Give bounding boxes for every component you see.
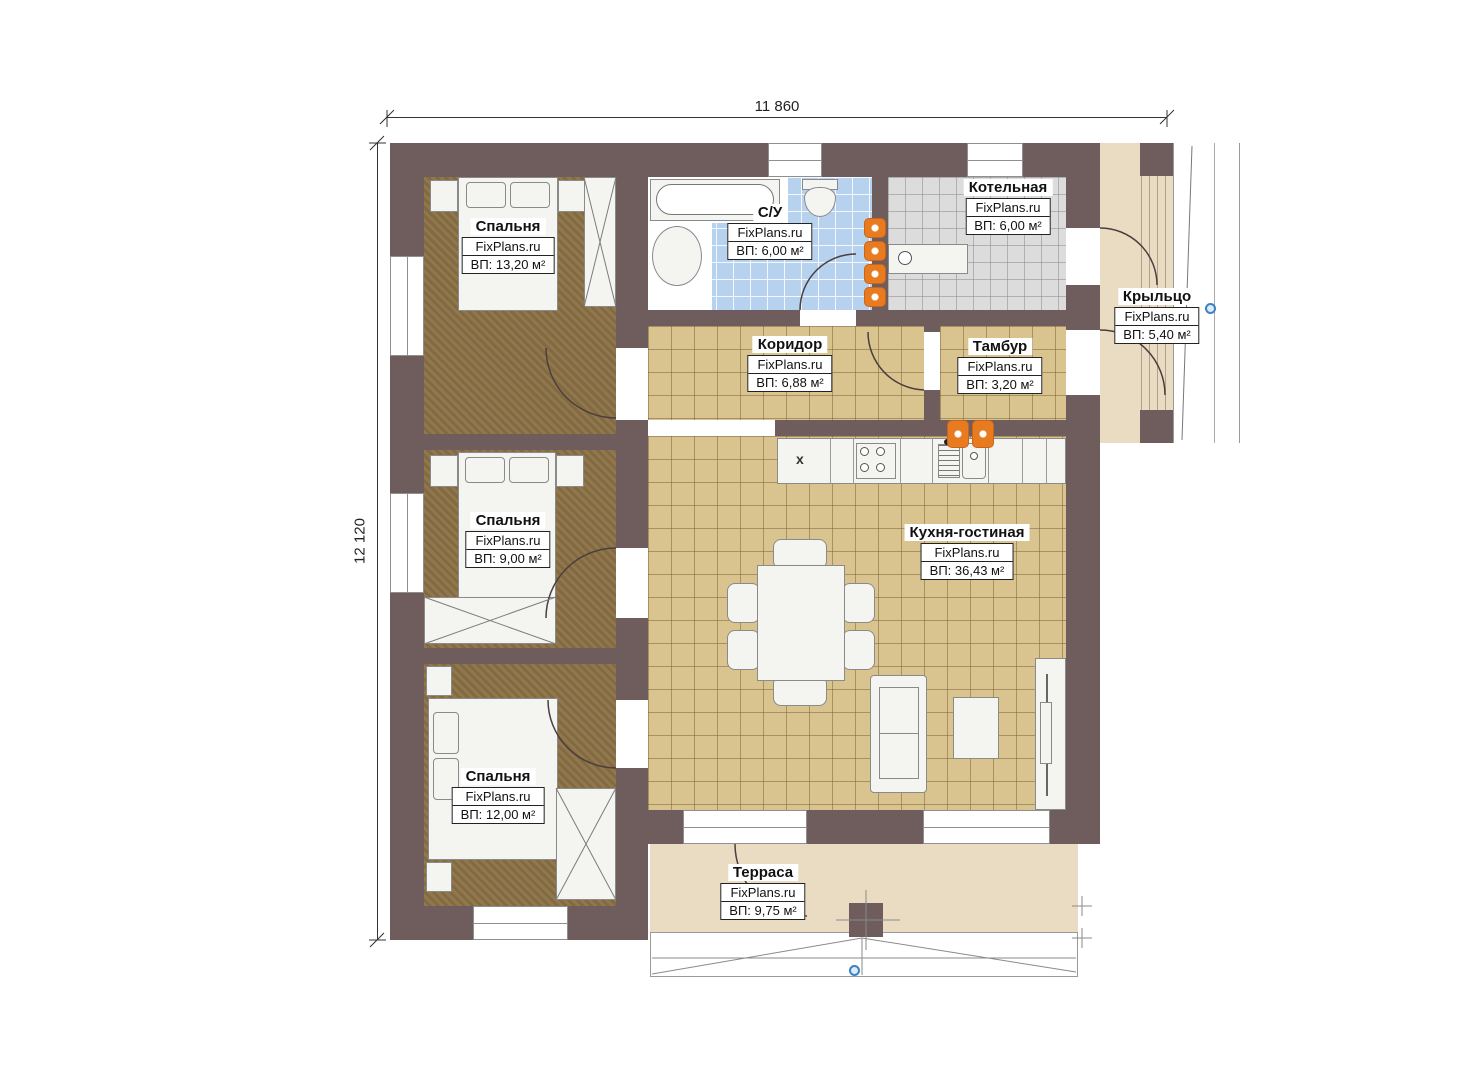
- room-area-kitchen-living: ВП: 36,43 м²: [922, 561, 1013, 579]
- room-brand-porch: FixPlans.ru: [1115, 308, 1198, 325]
- room-area-boiler: ВП: 6,00 м²: [966, 216, 1049, 234]
- dining-chair-right-2: [842, 630, 875, 670]
- room-label-porch: Крыльцо FixPlans.ru ВП: 5,40 м²: [1114, 288, 1199, 344]
- window-left-bedroom2: [390, 493, 424, 593]
- room-area-bathroom: ВП: 6,00 м²: [728, 241, 811, 259]
- coffee-table: [953, 697, 999, 759]
- counter-divider-3: [900, 438, 901, 484]
- counter-divider-1: [830, 438, 831, 484]
- stove-burner-1: [860, 447, 869, 456]
- door-gap-bedroom1: [616, 348, 648, 420]
- kitchen-living-floor: [648, 436, 1066, 810]
- room-box-bedroom3: FixPlans.ru ВП: 12,00 м²: [452, 787, 545, 824]
- dimension-width-label: 11 860: [755, 98, 800, 115]
- bathroom-sink: [652, 226, 702, 286]
- selection-handle-terrace[interactable]: [849, 965, 860, 976]
- dining-chair-left-2: [727, 630, 760, 670]
- room-box-tambour: FixPlans.ru ВП: 3,20 м²: [957, 357, 1042, 394]
- room-name-bedroom2: Спальня: [471, 512, 546, 529]
- radiator-1: [864, 218, 886, 238]
- room-label-bedroom3: Спальня FixPlans.ru ВП: 12,00 м²: [452, 768, 545, 824]
- room-brand-corridor: FixPlans.ru: [748, 356, 831, 373]
- room-label-bathroom: С/У FixPlans.ru ВП: 6,00 м²: [727, 204, 812, 260]
- bedroom3-nightstand-bottom: [426, 862, 452, 892]
- opening-corridor-kitchen: [648, 420, 775, 436]
- room-area-terrace: ВП: 9,75 м²: [721, 901, 804, 919]
- room-label-kitchen-living: Кухня-гостиная FixPlans.ru ВП: 36,43 м²: [905, 524, 1030, 580]
- window-top-bathroom: [768, 143, 822, 177]
- room-brand-bedroom1: FixPlans.ru: [463, 238, 554, 255]
- wall-bathroom-bottom: [648, 310, 1066, 326]
- appliance-x-mark: x: [796, 451, 804, 467]
- bedroom2-pillow-2: [509, 457, 549, 483]
- room-brand-tambour: FixPlans.ru: [958, 358, 1041, 375]
- terrace-steps: [650, 932, 1078, 977]
- room-box-terrace: FixPlans.ru ВП: 9,75 м²: [720, 883, 805, 920]
- room-brand-kitchen-living: FixPlans.ru: [922, 544, 1013, 561]
- stove-burner-3: [860, 463, 869, 472]
- room-box-bedroom2: FixPlans.ru ВП: 9,00 м²: [465, 531, 550, 568]
- selection-handle-porch[interactable]: [1205, 303, 1216, 314]
- door-gap-corridor-tambour: [924, 332, 940, 390]
- window-bottom-bedroom3: [473, 906, 568, 940]
- room-label-terrace: Терраса FixPlans.ru ВП: 9,75 м²: [720, 864, 805, 920]
- stove-burner-4: [876, 463, 885, 472]
- room-area-porch: ВП: 5,40 м²: [1115, 325, 1198, 343]
- room-box-bathroom: FixPlans.ru ВП: 6,00 м²: [727, 223, 812, 260]
- window-bottom-living: [923, 810, 1050, 844]
- room-box-boiler: FixPlans.ru ВП: 6,00 м²: [965, 198, 1050, 235]
- room-name-boiler: Котельная: [964, 179, 1053, 196]
- room-brand-bedroom2: FixPlans.ru: [466, 532, 549, 549]
- bedroom3-wardrobe: [556, 788, 616, 900]
- room-area-bedroom3: ВП: 12,00 м²: [453, 805, 544, 823]
- sofa-cushion-divider: [879, 733, 919, 734]
- sink-drainer: [938, 444, 960, 478]
- room-area-bedroom2: ВП: 9,00 м²: [466, 549, 549, 567]
- bedroom1-wardrobe: [584, 177, 616, 307]
- room-box-kitchen-living: FixPlans.ru ВП: 36,43 м²: [921, 543, 1014, 580]
- door-gap-bedroom2: [616, 548, 648, 618]
- bedroom2-nightstand-left: [430, 455, 458, 487]
- counter-divider-7: [1046, 438, 1047, 484]
- bedroom2-pillow-1: [465, 457, 505, 483]
- room-brand-terrace: FixPlans.ru: [721, 884, 804, 901]
- room-area-tambour: ВП: 3,20 м²: [958, 375, 1041, 393]
- bedroom2-wardrobe: [424, 597, 556, 644]
- dimension-height-label: 12 120: [352, 518, 369, 564]
- tv-box: [1040, 702, 1052, 764]
- door-gap-boiler-porch: [1066, 228, 1100, 285]
- bedroom2-nightstand-right: [556, 455, 584, 487]
- room-label-boiler: Котельная FixPlans.ru ВП: 6,00 м²: [964, 179, 1053, 235]
- sofa: [870, 675, 927, 793]
- room-box-porch: FixPlans.ru ВП: 5,40 м²: [1114, 307, 1199, 344]
- room-brand-bedroom3: FixPlans.ru: [453, 788, 544, 805]
- door-gap-bedroom3: [616, 700, 648, 768]
- room-box-corridor: FixPlans.ru ВП: 6,88 м²: [747, 355, 832, 392]
- boiler-counter-sink: [898, 251, 912, 265]
- room-brand-boiler: FixPlans.ru: [966, 199, 1049, 216]
- door-gap-bathroom: [800, 310, 856, 326]
- room-area-corridor: ВП: 6,88 м²: [748, 373, 831, 391]
- porch-steps-edge-line: [1214, 143, 1215, 443]
- bedroom1-nightstand-right: [558, 180, 586, 212]
- wall-bedroom1-bedroom2: [424, 434, 616, 450]
- room-brand-bathroom: FixPlans.ru: [728, 224, 811, 241]
- dining-chair-left-1: [727, 583, 760, 623]
- room-name-bedroom1: Спальня: [471, 218, 546, 235]
- room-area-bedroom1: ВП: 13,20 м²: [463, 255, 554, 273]
- bedroom3-nightstand-top: [426, 666, 452, 696]
- window-left-bedroom1: [390, 256, 424, 356]
- dimension-line-left: [377, 143, 378, 940]
- bedroom1-pillow-1: [466, 182, 506, 208]
- radiator-4: [864, 287, 886, 307]
- radiator-3: [864, 264, 886, 284]
- room-label-bedroom2: Спальня FixPlans.ru ВП: 9,00 м²: [465, 512, 550, 568]
- room-name-terrace: Терраса: [728, 864, 798, 881]
- room-label-tambour: Тамбур FixPlans.ru ВП: 3,20 м²: [957, 338, 1042, 394]
- room-label-bedroom1: Спальня FixPlans.ru ВП: 13,20 м²: [462, 218, 555, 274]
- wall-kitchen-top: [775, 420, 1066, 436]
- water-heater-1: [947, 420, 969, 448]
- stove-burner-2: [876, 447, 885, 456]
- wall-bedroom2-bedroom3: [424, 648, 616, 664]
- kitchen-sink-bowl: [962, 443, 986, 479]
- porch-pillar-top: [1140, 143, 1173, 176]
- counter-divider-4: [932, 438, 933, 484]
- room-name-porch: Крыльцо: [1118, 288, 1196, 305]
- dining-table: [757, 565, 845, 681]
- room-box-bedroom1: FixPlans.ru ВП: 13,20 м²: [462, 237, 555, 274]
- dining-chair-right-1: [842, 583, 875, 623]
- counter-divider-6: [1022, 438, 1023, 484]
- bedroom1-pillow-2: [510, 182, 550, 208]
- room-name-corridor: Коридор: [753, 336, 828, 353]
- bedroom1-nightstand-left: [430, 180, 458, 212]
- room-name-kitchen-living: Кухня-гостиная: [905, 524, 1030, 541]
- room-name-tambour: Тамбур: [968, 338, 1032, 355]
- kitchen-sink-drain: [970, 452, 978, 460]
- terrace-door-window: [683, 810, 807, 844]
- radiator-2: [864, 241, 886, 261]
- bedroom3-pillow-1: [433, 712, 459, 754]
- dimension-line-top: [387, 117, 1167, 118]
- window-top-boiler: [967, 143, 1023, 177]
- counter-divider-2: [853, 438, 854, 484]
- water-heater-2: [972, 420, 994, 448]
- porch-pillar-bottom: [1140, 410, 1173, 443]
- terrace-column: [849, 903, 883, 937]
- floor-plan-canvas: 11 860 12 120: [0, 0, 1474, 1080]
- door-gap-tambour-porch: [1066, 330, 1100, 395]
- room-name-bathroom: С/У: [753, 204, 787, 221]
- room-name-bedroom3: Спальня: [461, 768, 536, 785]
- room-label-corridor: Коридор FixPlans.ru ВП: 6,88 м²: [747, 336, 832, 392]
